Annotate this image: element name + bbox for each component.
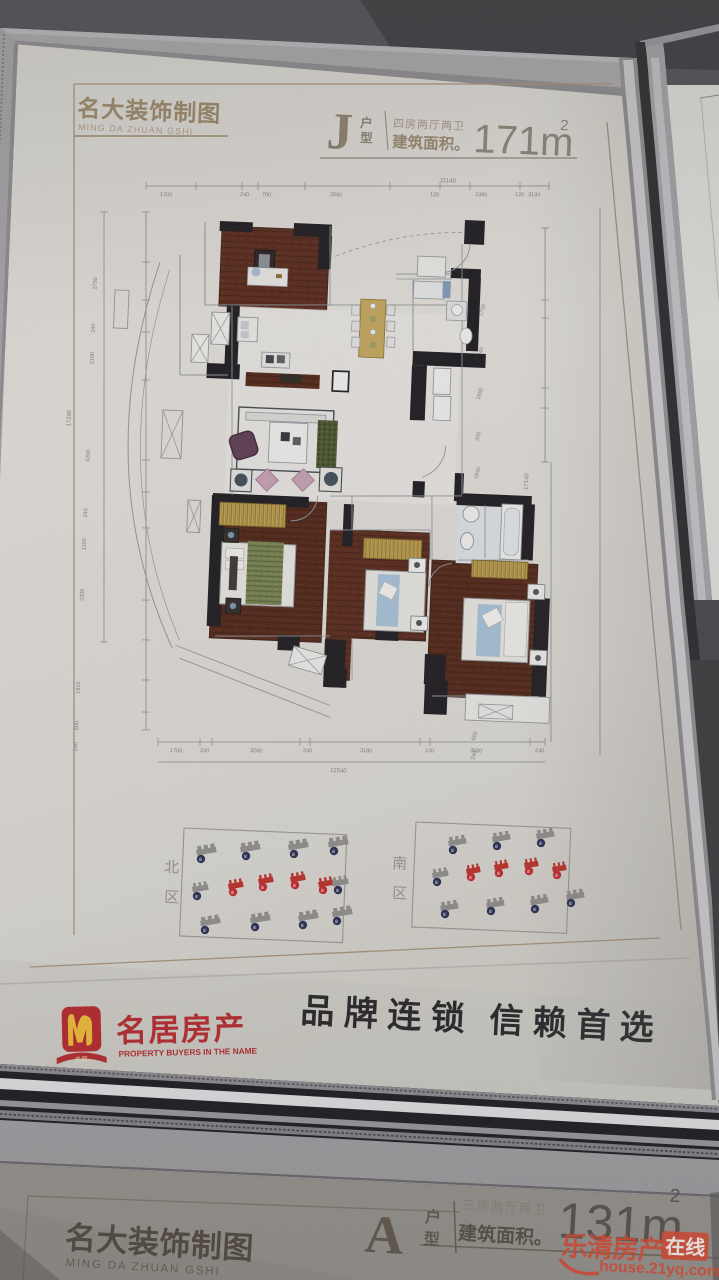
svg-text:在线: 在线 [665,1234,706,1260]
